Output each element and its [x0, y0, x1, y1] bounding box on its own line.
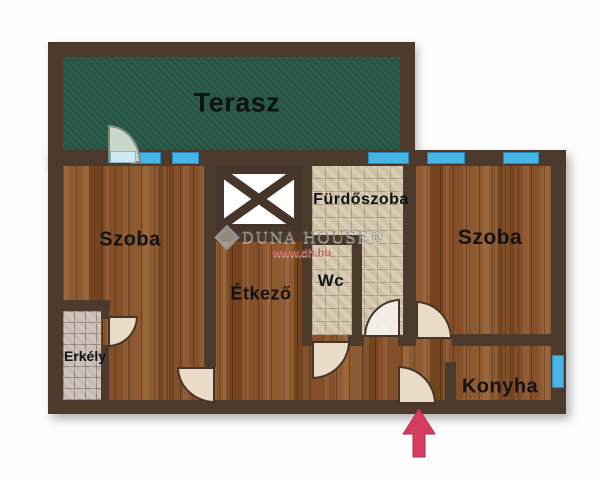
wall-wc-top — [312, 235, 362, 245]
wall-hall-jamb-left — [302, 335, 312, 346]
door-terrace-leaf — [110, 151, 136, 163]
wall-rightroom-kitchen — [452, 334, 551, 346]
room-label-wc: Wc — [318, 271, 345, 291]
room-label-szoba-left: Szoba — [99, 229, 160, 252]
room-label-erkely: Erkély — [64, 348, 106, 364]
wall-bath-rightroom — [403, 150, 416, 346]
wall-bottom — [48, 400, 566, 414]
room-label-furdoszoba: Fürdőszoba — [313, 191, 409, 209]
window-kitchen — [552, 355, 564, 388]
window-bathroom — [368, 152, 409, 164]
wall-leftroom-dining — [204, 166, 216, 367]
stairwell-x-icon — [224, 174, 294, 224]
room-label-terasz: Terasz — [194, 88, 281, 119]
window-rightroom-2 — [503, 152, 539, 164]
wall-left — [48, 150, 63, 414]
wall-balcony-top — [48, 300, 110, 311]
room-label-etkezo: Étkező — [230, 284, 291, 305]
room-label-szoba-right: Szoba — [458, 226, 522, 250]
wall-dining-bath — [302, 166, 312, 346]
wall-hall-kitchen — [445, 362, 456, 400]
room-label-konyha: Konyha — [462, 376, 538, 399]
wall-hall-jamb-mid — [348, 335, 364, 346]
window-leftroom-2 — [172, 152, 199, 164]
wall-wc-bath — [352, 245, 362, 335]
stairwell-box — [216, 166, 302, 232]
wall-under-stairwell — [216, 232, 312, 242]
window-rightroom-1 — [427, 152, 465, 164]
floorplan: Terasz Szoba Étkező Fürdőszoba Wc Szoba … — [0, 0, 600, 480]
entrance-arrow-icon — [401, 407, 438, 459]
